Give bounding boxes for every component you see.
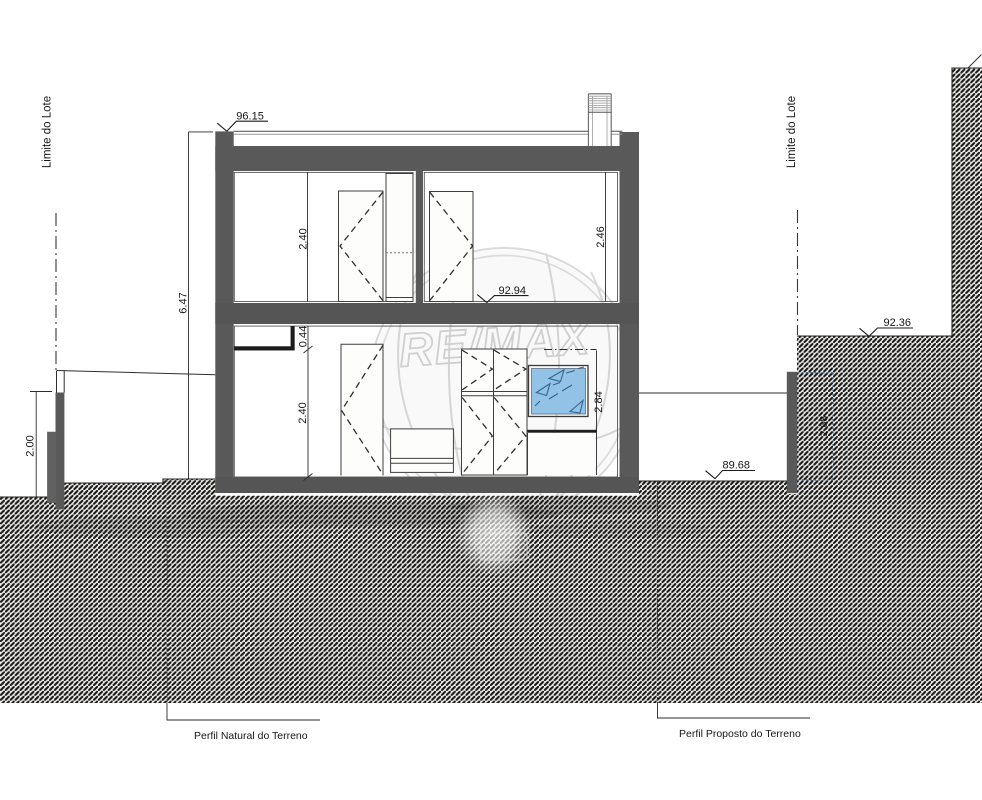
svg-text:2.68: 2.68 [818, 416, 830, 437]
svg-text:92.36: 92.36 [884, 317, 912, 329]
svg-text:2.46: 2.46 [595, 226, 607, 247]
svg-text:Limite do Lote: Limite do Lote [786, 96, 798, 168]
svg-text:6.47: 6.47 [178, 292, 190, 313]
svg-text:2.40: 2.40 [297, 402, 309, 423]
svg-text:Limite do Lote: Limite do Lote [42, 96, 54, 168]
svg-text:0.44: 0.44 [298, 326, 310, 347]
svg-text:Perfil Natural do Terreno: Perfil Natural do Terreno [194, 730, 308, 742]
svg-text:2.00: 2.00 [25, 435, 37, 456]
svg-text:89.68: 89.68 [723, 459, 751, 471]
svg-text:2.84: 2.84 [593, 391, 605, 412]
svg-text:2.40: 2.40 [298, 228, 310, 249]
svg-text:Perfil Proposto do Terreno: Perfil Proposto do Terreno [679, 728, 801, 740]
svg-text:96.15: 96.15 [236, 111, 264, 123]
svg-text:92.94: 92.94 [499, 285, 527, 297]
